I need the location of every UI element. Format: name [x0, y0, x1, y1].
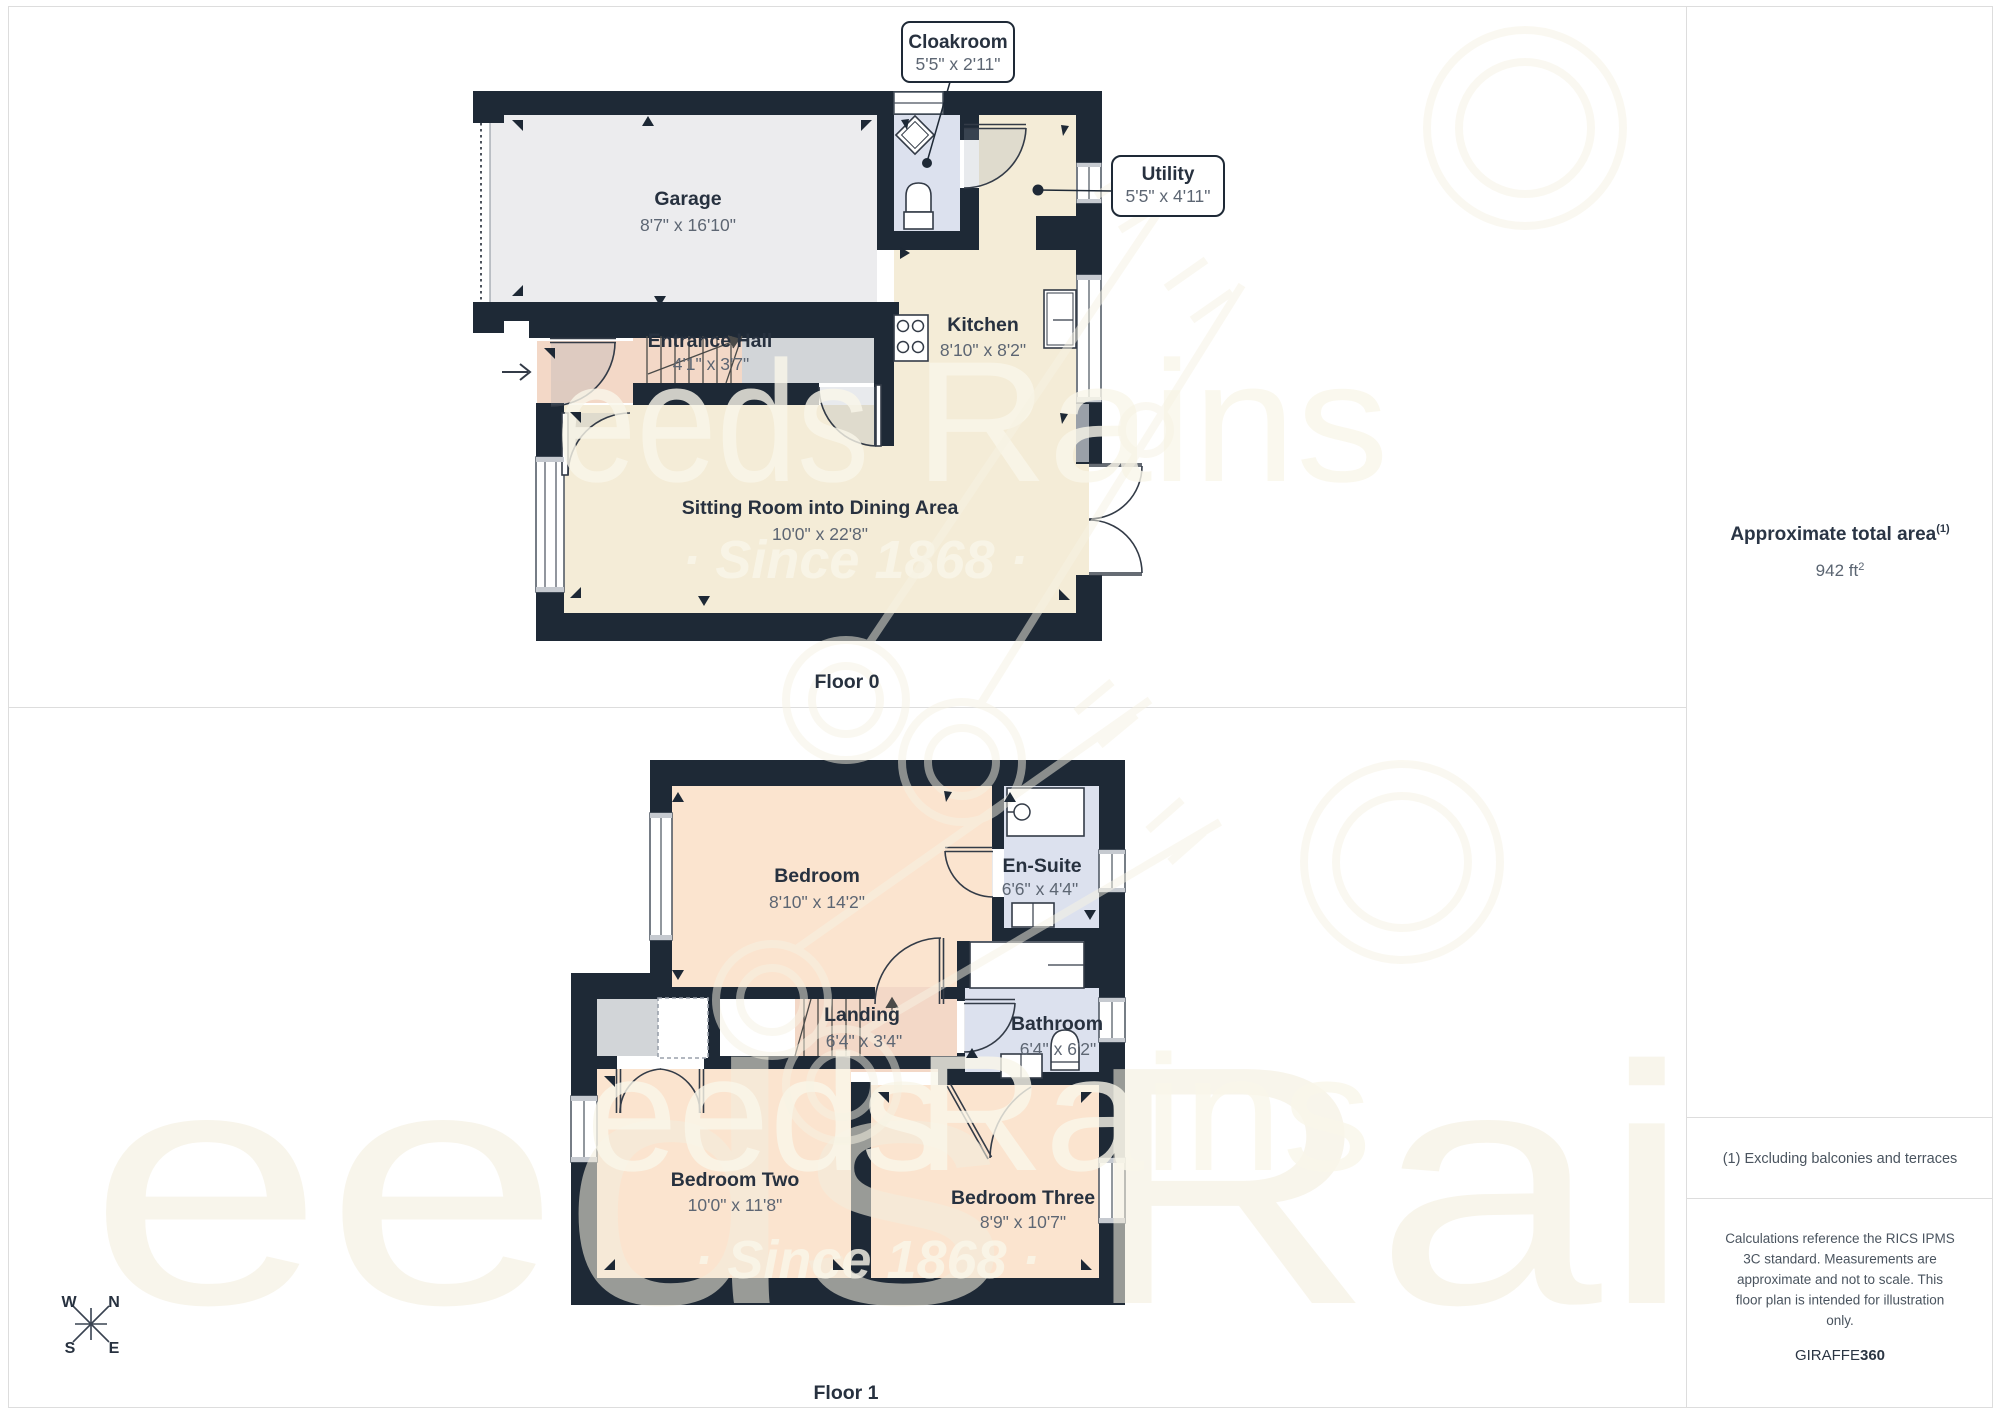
svg-text:Entrance Hall: Entrance Hall: [648, 330, 773, 352]
svg-text:(1) Excluding balconies and te: (1) Excluding balconies and terraces: [1723, 1151, 1958, 1167]
svg-text:3C standard. Measurements are: 3C standard. Measurements are: [1743, 1252, 1937, 1267]
svg-text:· Since 1868 ·: · Since 1868 ·: [694, 1230, 1039, 1290]
svg-text:Bedroom: Bedroom: [774, 865, 860, 887]
svg-text:Calculations reference the RIC: Calculations reference the RICS IPMS: [1725, 1231, 1955, 1246]
svg-text:Approximate total area(1): Approximate total area(1): [1730, 523, 1950, 545]
svg-text:Rains: Rains: [916, 1022, 1372, 1206]
svg-text:Cloakroom: Cloakroom: [908, 32, 1007, 53]
svg-text:6'4" x 3'4": 6'4" x 3'4": [826, 1031, 903, 1051]
svg-text:Bedroom Three: Bedroom Three: [951, 1187, 1095, 1209]
svg-text:Kitchen: Kitchen: [947, 314, 1019, 336]
svg-text:S: S: [65, 1340, 76, 1357]
svg-text:8'10" x 8'2": 8'10" x 8'2": [940, 340, 1026, 360]
svg-text:6'4" x 6'2": 6'4" x 6'2": [1020, 1039, 1097, 1059]
svg-text:Bathroom: Bathroom: [1011, 1013, 1103, 1035]
svg-text:10'0" x 22'8": 10'0" x 22'8": [772, 524, 868, 544]
svg-text:Utility: Utility: [1142, 164, 1195, 185]
svg-text:5'5" x 2'11": 5'5" x 2'11": [916, 54, 1001, 74]
svg-text:Floor 1: Floor 1: [813, 1382, 878, 1404]
svg-text:8'9" x 10'7": 8'9" x 10'7": [980, 1212, 1066, 1232]
svg-text:E: E: [109, 1340, 120, 1357]
svg-text:8'10" x 14'2": 8'10" x 14'2": [769, 892, 865, 912]
svg-text:Sitting Room into Dining Area: Sitting Room into Dining Area: [682, 497, 959, 519]
svg-text:4'1" x 3'7": 4'1" x 3'7": [673, 354, 750, 374]
svg-text:GIRAFFE360: GIRAFFE360: [1795, 1347, 1885, 1364]
svg-text:Landing: Landing: [824, 1004, 900, 1026]
svg-text:approximate and not to scale.: approximate and not to scale. This: [1737, 1272, 1943, 1287]
svg-text:N: N: [108, 1294, 120, 1311]
svg-text:942 ft2: 942 ft2: [1816, 561, 1865, 580]
svg-text:5'5" x 4'11": 5'5" x 4'11": [1126, 186, 1211, 206]
svg-text:Bedroom Two: Bedroom Two: [671, 1169, 800, 1191]
svg-text:6'6" x 4'4": 6'6" x 4'4": [1002, 879, 1079, 899]
svg-text:10'0" x 11'8": 10'0" x 11'8": [688, 1195, 783, 1215]
svg-text:Garage: Garage: [654, 188, 721, 210]
svg-text:floor plan is intended for ill: floor plan is intended for illustration: [1736, 1293, 1945, 1308]
svg-text:W: W: [61, 1294, 77, 1311]
svg-text:8'7" x 16'10": 8'7" x 16'10": [640, 215, 736, 235]
svg-text:Floor 0: Floor 0: [814, 671, 879, 693]
svg-text:only.: only.: [1826, 1313, 1854, 1328]
svg-text:En-Suite: En-Suite: [1002, 855, 1081, 877]
